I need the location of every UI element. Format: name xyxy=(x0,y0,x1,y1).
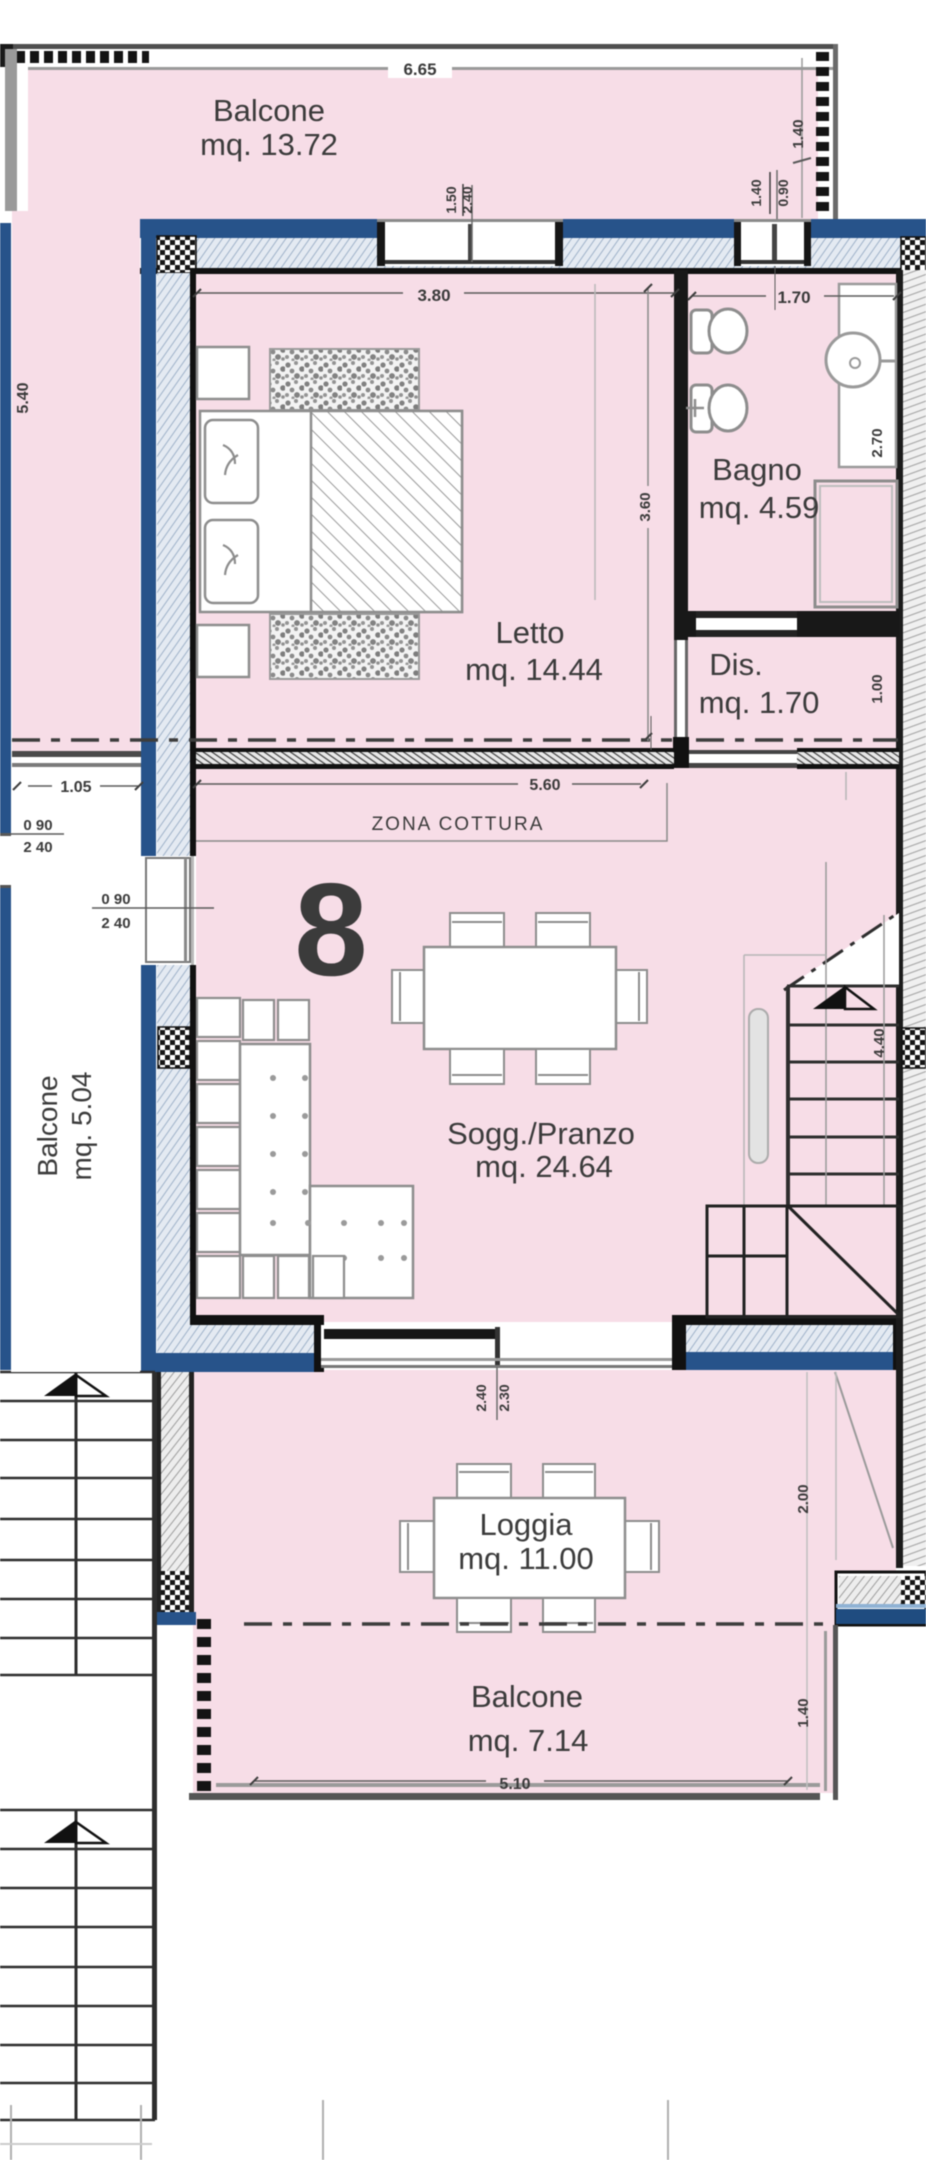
svg-text:1.00: 1.00 xyxy=(869,674,886,703)
svg-text:1.40: 1.40 xyxy=(748,179,764,206)
svg-text:Balcone: Balcone xyxy=(213,93,325,128)
svg-text:Balcone: Balcone xyxy=(32,1075,63,1176)
svg-text:Dis.: Dis. xyxy=(709,647,762,682)
svg-text:1.05: 1.05 xyxy=(60,779,91,796)
svg-text:1.40: 1.40 xyxy=(795,1698,812,1727)
svg-text:1.40: 1.40 xyxy=(790,119,807,148)
svg-text:2.40: 2.40 xyxy=(459,186,475,213)
svg-text:mq. 13.72: mq. 13.72 xyxy=(200,127,338,162)
svg-text:1.50: 1.50 xyxy=(443,186,459,213)
svg-text:4.40: 4.40 xyxy=(871,1028,888,1057)
svg-text:1.70: 1.70 xyxy=(777,288,810,307)
svg-text:0.90: 0.90 xyxy=(775,179,791,206)
svg-text:5.60: 5.60 xyxy=(529,777,560,794)
svg-text:Bagno: Bagno xyxy=(712,452,802,487)
svg-text:0 90: 0 90 xyxy=(101,891,130,908)
svg-text:mq. 14.44: mq. 14.44 xyxy=(465,652,603,687)
svg-text:mq. 7.14: mq. 7.14 xyxy=(468,1723,589,1758)
svg-text:mq. 24.64: mq. 24.64 xyxy=(475,1149,613,1184)
svg-text:5.10: 5.10 xyxy=(499,1776,530,1793)
svg-text:2 40: 2 40 xyxy=(101,915,130,932)
svg-text:0 90: 0 90 xyxy=(23,817,52,834)
svg-text:2.40: 2.40 xyxy=(473,1384,489,1411)
svg-text:Letto: Letto xyxy=(496,615,565,650)
svg-text:Loggia: Loggia xyxy=(479,1507,573,1542)
svg-text:mq. 4.59: mq. 4.59 xyxy=(699,490,820,525)
svg-text:2.00: 2.00 xyxy=(795,1484,812,1513)
svg-text:mq. 1.70: mq. 1.70 xyxy=(699,685,820,720)
svg-text:Balcone: Balcone xyxy=(471,1679,583,1714)
svg-text:Sogg./Pranzo: Sogg./Pranzo xyxy=(447,1116,635,1151)
svg-text:8: 8 xyxy=(294,856,367,1003)
svg-text:2 40: 2 40 xyxy=(23,839,52,856)
svg-text:3.80: 3.80 xyxy=(417,286,450,305)
svg-text:5.40: 5.40 xyxy=(15,382,32,413)
svg-text:6.65: 6.65 xyxy=(403,60,436,79)
svg-text:3.60: 3.60 xyxy=(637,492,654,521)
svg-text:2.70: 2.70 xyxy=(869,428,886,457)
svg-text:2.30: 2.30 xyxy=(496,1384,512,1411)
svg-text:mq. 11.00: mq. 11.00 xyxy=(458,1541,594,1576)
svg-text:ZONA COTTURA: ZONA COTTURA xyxy=(372,814,545,835)
svg-text:mq. 5.04: mq. 5.04 xyxy=(66,1072,97,1181)
